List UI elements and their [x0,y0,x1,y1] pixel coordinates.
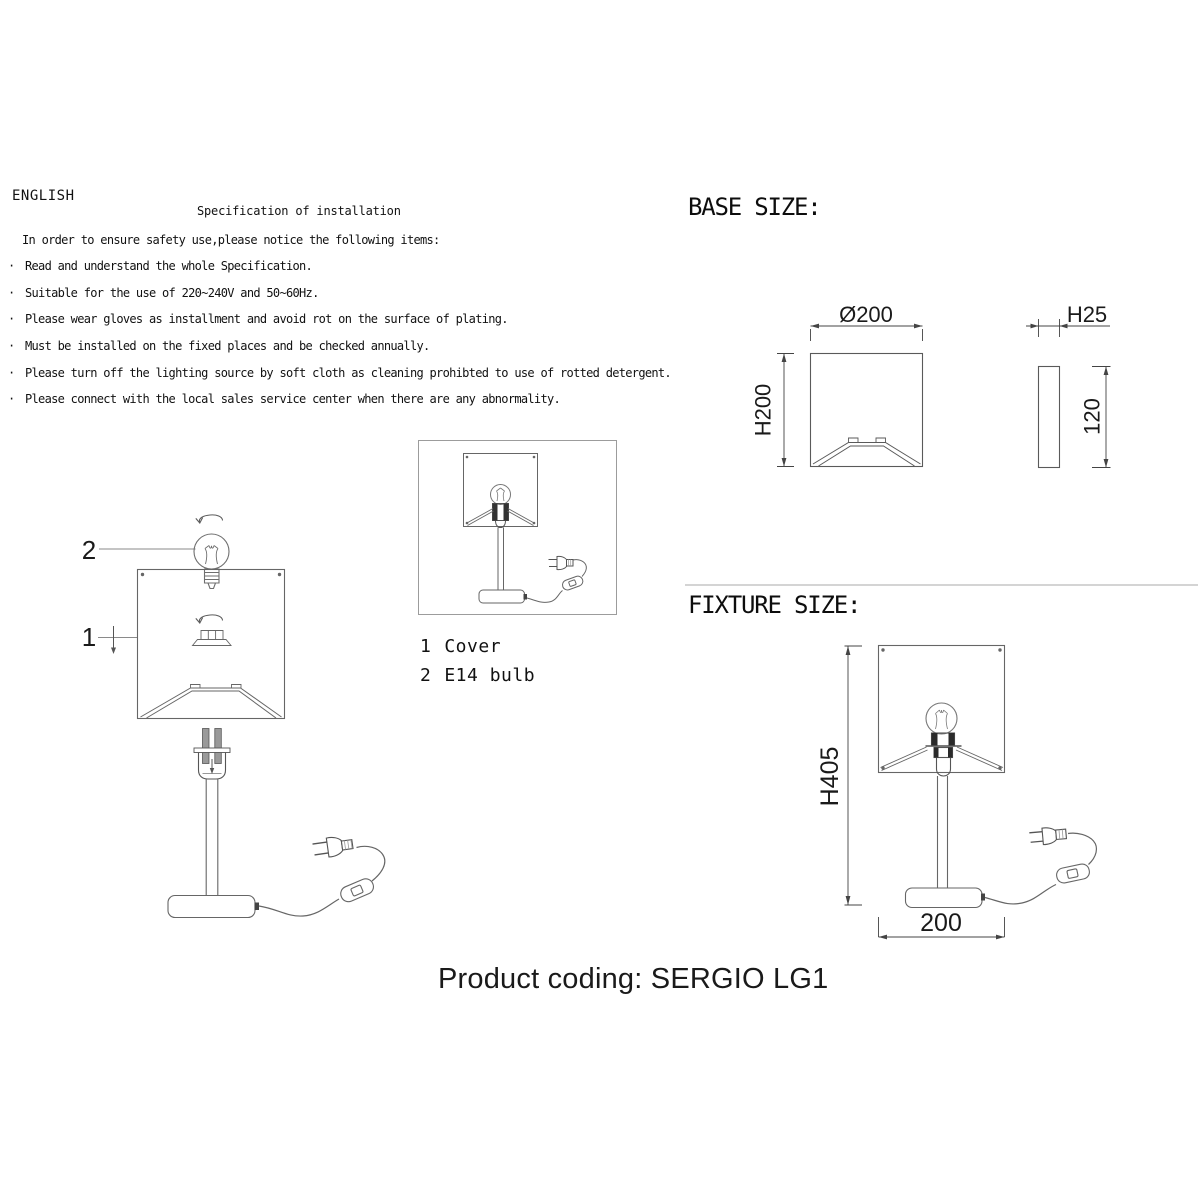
dimension-thickness: H25 [1026,302,1110,337]
base-side-view [1039,367,1060,468]
socket-assembly-illustration [194,729,230,780]
fixture-socket [881,733,1004,776]
power-plug-icon [549,556,574,569]
fixture-shade [879,646,1005,773]
callout-2-bulb: 2 [82,535,96,565]
drawing-frame [419,441,617,615]
callout-1-cover: 1 [82,622,96,652]
fixture-size-drawing: H405 200 [816,646,1096,940]
fixture-cord [985,826,1096,904]
base-front-view [811,354,923,467]
dimension-fixture-height: H405 [816,646,862,905]
dim-label-diameter: Ø200 [839,302,893,327]
inline-switch-icon [338,876,375,904]
base-size-drawing: Ø200 H200 H25 120 [751,302,1111,468]
inline-switch-icon [561,575,584,592]
rotate-arrow-icon [196,515,223,523]
down-arrow-icon [111,626,116,654]
dimension-diameter: Ø200 [811,302,923,341]
inline-switch-icon [1055,863,1090,885]
shade-cover-illustration [138,570,285,719]
bulb-illustration [194,534,229,589]
stem-and-base-illustration [168,779,259,918]
assembled-shade [464,454,538,527]
assembled-socket [466,504,535,528]
assembled-stem-base [479,528,527,604]
assembled-cord [527,556,586,602]
dimension-side-height: 120 [1080,367,1111,468]
fixture-stem-base [906,776,986,908]
technical-drawings: 2 1 [0,0,1200,1200]
dimension-fixture-width: 200 [879,909,1005,939]
assembled-lamp-drawing [419,441,617,615]
dim-label-fixture-height: H405 [816,747,844,807]
exploded-lamp-drawing: 2 1 [82,515,385,918]
power-plug-icon [312,835,354,860]
assembled-bulb [491,485,511,505]
rotate-arrow-icon [196,615,223,623]
power-cord-illustration [259,835,385,917]
dim-label-thickness: H25 [1067,302,1107,327]
dim-label-side-height: 120 [1080,398,1105,435]
dim-label-fixture-width: 200 [920,909,962,937]
spec-sheet-page: ENGLISH Specification of installation In… [0,0,1200,1200]
dimension-height: H200 [751,354,795,467]
power-plug-icon [1029,826,1067,846]
fixture-bulb [926,703,957,734]
dim-label-height: H200 [751,384,776,437]
